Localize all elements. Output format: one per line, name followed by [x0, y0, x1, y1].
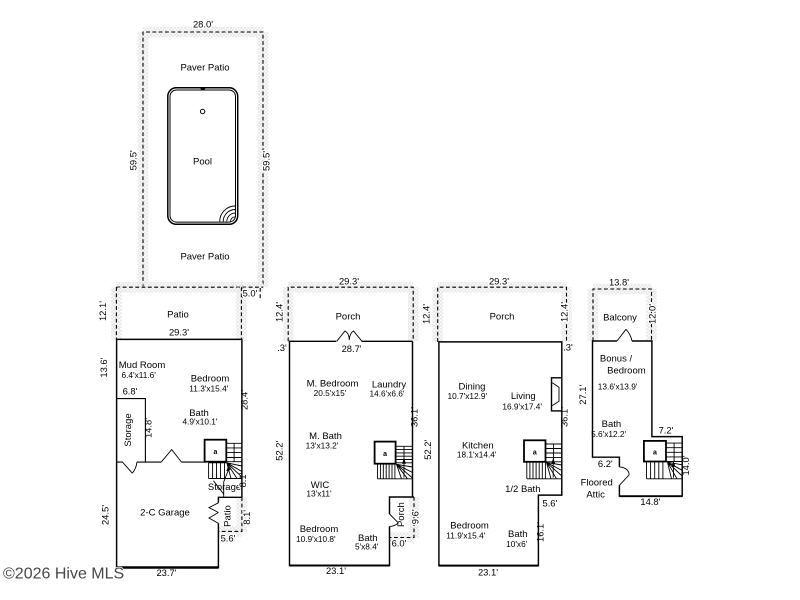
- svg-text:Bonus /: Bonus /: [600, 354, 633, 365]
- svg-text:a: a: [214, 449, 218, 456]
- svg-text:5'x8.4': 5'x8.4': [355, 542, 379, 552]
- svg-text:28.0': 28.0': [193, 19, 213, 30]
- svg-text:13'x11': 13'x11': [306, 488, 332, 498]
- svg-text:23.1': 23.1': [478, 567, 498, 578]
- svg-text:9.6': 9.6': [410, 509, 421, 524]
- svg-text:13'x13.2': 13'x13.2': [306, 441, 339, 451]
- svg-text:6.8': 6.8': [123, 386, 138, 397]
- svg-text:5.6'x12.2': 5.6'x12.2': [591, 429, 626, 439]
- svg-text:24.5': 24.5': [100, 505, 111, 525]
- svg-text:29.3': 29.3': [489, 275, 509, 286]
- svg-text:11.9'x15.4': 11.9'x15.4': [446, 530, 485, 540]
- svg-text:14.8': 14.8': [143, 418, 154, 438]
- svg-text:10.9'x10.8': 10.9'x10.8': [296, 534, 336, 544]
- svg-text:a: a: [653, 450, 657, 457]
- svg-text:14.0': 14.0': [680, 455, 691, 475]
- svg-text:12.4': 12.4': [421, 304, 432, 324]
- svg-text:Balcony: Balcony: [603, 313, 637, 324]
- svg-text:36.1': 36.1': [409, 407, 420, 427]
- svg-text:13.6'x13.9': 13.6'x13.9': [598, 382, 638, 392]
- svg-text:28.7': 28.7': [342, 343, 362, 354]
- svg-text:52.2': 52.2': [274, 440, 285, 460]
- svg-text:12.4': 12.4': [559, 302, 570, 322]
- svg-text:Porch: Porch: [336, 311, 361, 322]
- svg-text:8.1': 8.1': [241, 510, 252, 525]
- svg-text:52.2': 52.2': [422, 439, 433, 459]
- svg-text:7.2': 7.2': [659, 425, 674, 436]
- svg-text:13.6': 13.6': [98, 357, 109, 377]
- svg-text:29.3': 29.3': [339, 275, 359, 286]
- svg-text:28.4': 28.4': [239, 390, 250, 410]
- svg-text:5.0': 5.0': [243, 288, 258, 299]
- svg-text:©2026 Hive MLS: ©2026 Hive MLS: [3, 566, 124, 583]
- svg-text:1/2 Bath: 1/2 Bath: [505, 484, 540, 495]
- svg-text:Floored: Floored: [581, 478, 613, 489]
- svg-text:a: a: [533, 449, 537, 456]
- svg-text:5.6': 5.6': [221, 533, 236, 544]
- svg-text:.3': .3': [563, 342, 573, 353]
- svg-text:12.4': 12.4': [274, 302, 285, 322]
- svg-text:10'x6': 10'x6': [506, 539, 528, 549]
- svg-text:18.1'x14.4': 18.1'x14.4': [457, 449, 497, 459]
- svg-text:6.2': 6.2': [598, 458, 613, 469]
- svg-text:23.1': 23.1': [326, 565, 346, 576]
- svg-text:4.9'x10.1': 4.9'x10.1': [183, 417, 218, 427]
- svg-text:Storage: Storage: [123, 413, 134, 446]
- svg-text:6.0': 6.0': [392, 537, 407, 548]
- svg-text:5.6': 5.6': [542, 498, 557, 509]
- svg-text:6.4'x11.6': 6.4'x11.6': [122, 370, 157, 380]
- svg-text:11.3'x15.4': 11.3'x15.4': [189, 384, 228, 394]
- svg-text:16.1': 16.1': [534, 522, 545, 542]
- svg-text:.3': .3': [277, 342, 287, 353]
- svg-text:12.1': 12.1': [97, 301, 108, 321]
- svg-text:59.5': 59.5': [261, 151, 272, 171]
- svg-text:27.1': 27.1': [577, 384, 588, 404]
- svg-text:59.5': 59.5': [127, 150, 138, 170]
- svg-text:14.8': 14.8': [640, 496, 660, 507]
- svg-text:Paver Patio: Paver Patio: [180, 63, 229, 74]
- svg-text:Paver Patio: Paver Patio: [180, 252, 229, 263]
- svg-text:20.5'x15': 20.5'x15': [314, 388, 347, 398]
- svg-text:2-C Garage: 2-C Garage: [140, 508, 190, 519]
- svg-text:13.8': 13.8': [609, 277, 629, 288]
- svg-text:Patio: Patio: [223, 505, 234, 527]
- svg-text:29.3': 29.3': [169, 327, 189, 338]
- svg-text:Porch: Porch: [490, 312, 515, 323]
- svg-text:Patio: Patio: [167, 310, 189, 321]
- svg-text:Pool: Pool: [193, 157, 212, 168]
- svg-text:16.9'x17.4': 16.9'x17.4': [502, 401, 542, 411]
- svg-text:10.7'x12.9': 10.7'x12.9': [447, 391, 487, 401]
- svg-text:Attic: Attic: [586, 490, 605, 501]
- svg-text:Bedroom: Bedroom: [607, 366, 646, 377]
- svg-text:12.0': 12.0': [647, 304, 658, 324]
- svg-text:a: a: [383, 451, 387, 458]
- svg-text:14.6'x6.6': 14.6'x6.6': [370, 389, 405, 399]
